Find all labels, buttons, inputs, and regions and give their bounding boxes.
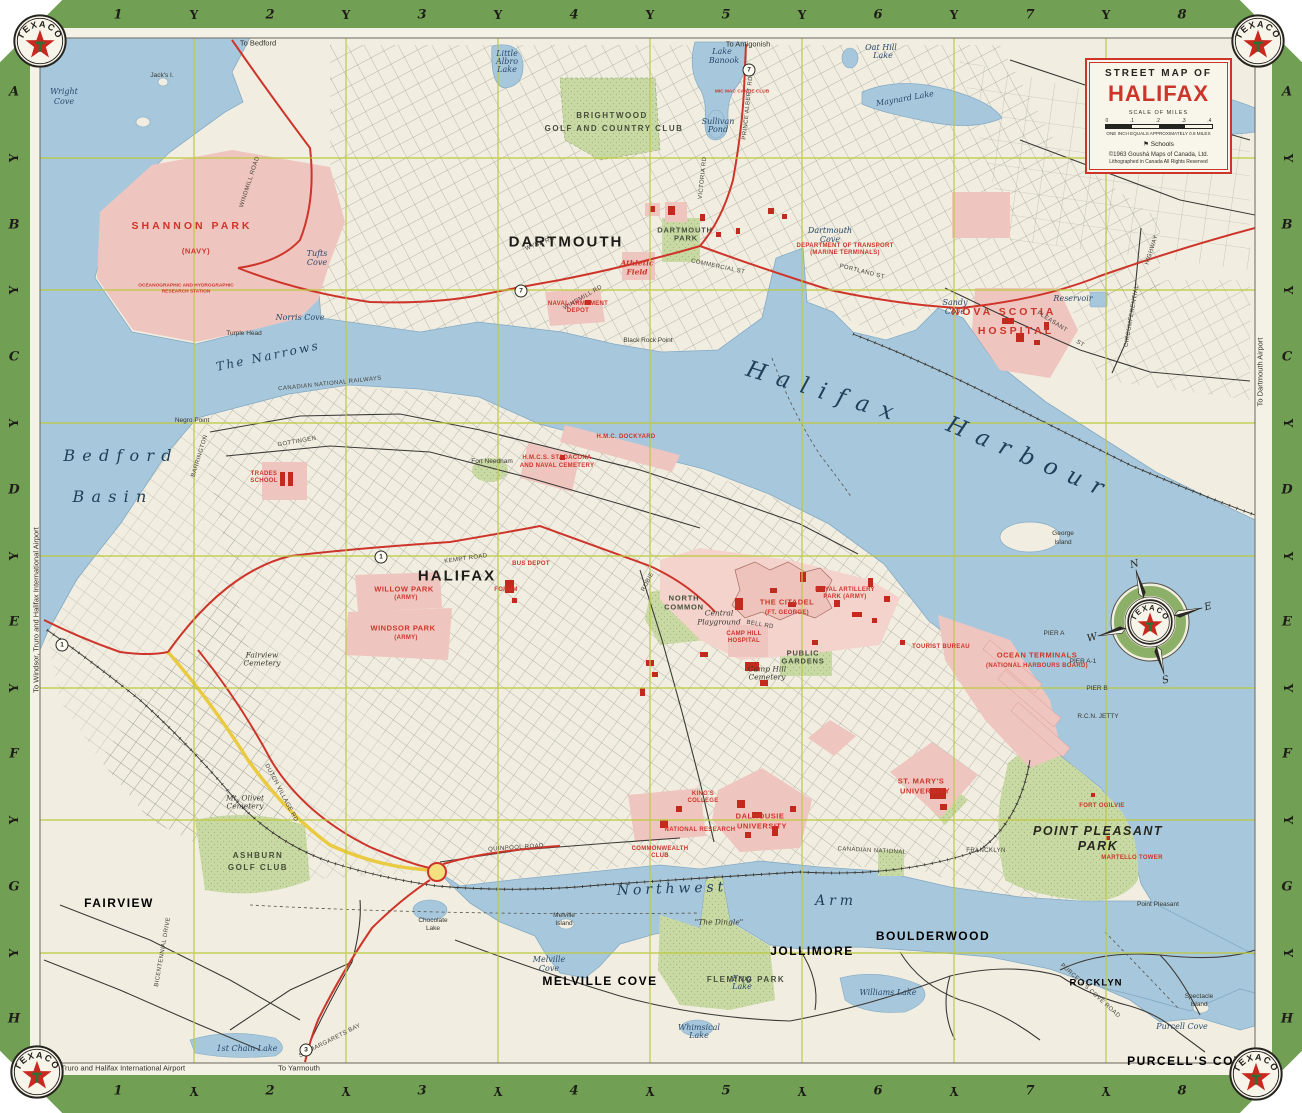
title-kicker: STREET MAP OF [1094,68,1223,79]
scale-tick: .1 [1130,118,1134,124]
texaco-logo-icon: TEXACO [1231,14,1285,68]
compass-s-label: S [1161,674,1171,686]
texaco-logo-tl: TEXACO [13,14,67,73]
title-box: STREET MAP OF HALIFAX SCALE OF MILES 0.1… [1085,58,1232,174]
highway-shield: 1 [56,639,69,652]
compass-e-label: E [1202,601,1214,614]
compass-w-label: W [1086,631,1099,644]
map-sheet: DARTMOUTHHALIFAXHalifaxHarbourBedfordBas… [0,0,1302,1113]
copyright: ©1963 Goushá Maps of Canada, Ltd. [1094,152,1223,158]
scale-bar [1105,124,1213,129]
texaco-logo-icon: TEXACO [1229,1047,1283,1101]
scale-tick: .2 [1156,118,1160,124]
texaco-logo-icon: TEXACO [13,14,67,68]
compass-n-label: N [1128,558,1141,571]
texaco-logo-tr: TEXACO [1231,14,1285,73]
texaco-logo-icon: TEXACO [1127,599,1173,645]
school-flag-icon: ⚑ [1143,141,1149,148]
scale-note: ONE INCH EQUALS APPROXIMATELY 0.8 MILES [1094,131,1223,136]
school-label: Schools [1151,141,1174,148]
scale-tick: .4 [1207,118,1211,124]
highway-shield: 1 [375,551,388,564]
highway-shield: 7 [515,285,528,298]
texaco-logo-icon: TEXACO [10,1045,64,1099]
scale-label: SCALE OF MILES [1094,110,1223,116]
map-title: HALIFAX [1094,81,1223,107]
scale-tick: .3 [1182,118,1186,124]
highway-shield: 7 [743,64,756,77]
scale-tick: 0 [1106,118,1109,124]
litho-note: Lithographed in Canada All Rights Reserv… [1094,159,1223,165]
highway-shield: 3 [300,1044,313,1057]
texaco-logo-bl: TEXACO [10,1045,64,1104]
legend-schools: ⚑ Schools [1094,140,1223,148]
compass-texaco-logo: TEXACO [1127,599,1173,650]
texaco-logo-br: TEXACO [1229,1047,1283,1106]
